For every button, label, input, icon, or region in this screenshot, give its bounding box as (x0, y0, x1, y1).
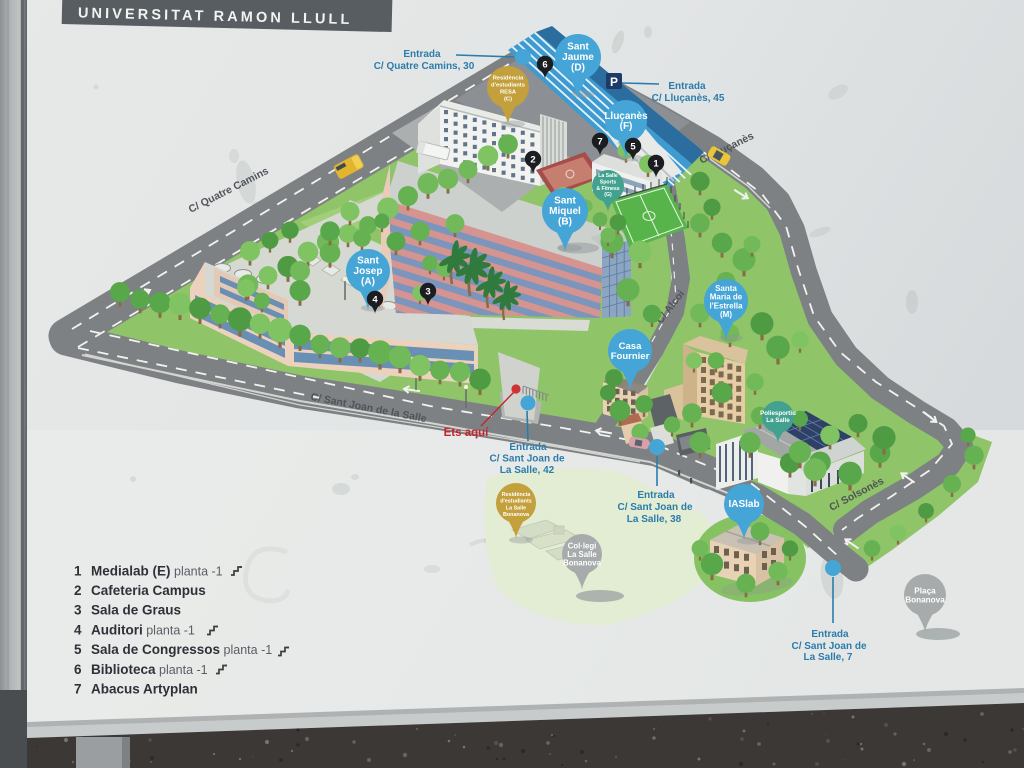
svg-text:2: 2 (530, 154, 535, 165)
svg-text:Miquel: Miquel (549, 206, 581, 217)
svg-text:d'estudiants: d'estudiants (500, 499, 532, 505)
svg-text:Entrada: Entrada (668, 81, 706, 92)
svg-text:6: 6 (542, 59, 547, 70)
svg-text:Sant: Sant (554, 196, 576, 207)
svg-text:Bonanova: Bonanova (905, 596, 945, 605)
svg-text:& Fitness: & Fitness (596, 186, 619, 192)
svg-text:C/ Sant Joan de: C/ Sant Joan de (791, 641, 866, 652)
svg-text:Jaume: Jaume (562, 52, 594, 63)
svg-text:Cafeteria Campus: Cafeteria Campus (91, 583, 206, 598)
svg-text:Sala de Graus: Sala de Graus (91, 603, 181, 618)
svg-text:Sant: Sant (567, 42, 589, 53)
svg-text:3: 3 (74, 603, 82, 618)
svg-text:Entrada: Entrada (637, 490, 675, 501)
svg-text:1: 1 (653, 158, 659, 169)
svg-text:4: 4 (74, 622, 82, 637)
svg-text:7: 7 (597, 136, 602, 147)
svg-text:Entrada: Entrada (811, 629, 849, 640)
svg-text:Josep: Josep (354, 266, 383, 277)
svg-text:(M): (M) (720, 310, 732, 319)
svg-text:La Salle: La Salle (506, 505, 526, 511)
svg-text:3: 3 (425, 286, 430, 297)
svg-text:d'estudiants: d'estudiants (491, 83, 525, 89)
svg-text:C/ Sant Joan de: C/ Sant Joan de (489, 454, 564, 465)
svg-text:Entrada: Entrada (509, 442, 547, 453)
svg-text:C/ Lluçanès, 45: C/ Lluçanès, 45 (652, 93, 725, 104)
svg-text:5: 5 (630, 141, 636, 152)
svg-text:(F): (F) (620, 121, 633, 132)
svg-text:(D): (D) (571, 63, 585, 74)
svg-text:2: 2 (74, 583, 82, 598)
svg-text:Fournier: Fournier (611, 351, 650, 362)
svg-text:Medialab (E) planta -1: Medialab (E) planta -1 (91, 563, 223, 578)
svg-text:RESA: RESA (500, 90, 517, 96)
svg-text:Sports: Sports (600, 179, 617, 185)
svg-text:(G): (G) (604, 192, 612, 198)
svg-text:Lluçanès: Lluçanès (604, 111, 648, 122)
svg-text:Poliesportiu: Poliesportiu (760, 410, 796, 417)
svg-text:C/ Quatre Camins, 30: C/ Quatre Camins, 30 (374, 61, 475, 72)
svg-text:Ets aquí: Ets aquí (444, 427, 490, 439)
svg-text:P: P (610, 75, 618, 89)
svg-text:Biblioteca planta -1: Biblioteca planta -1 (91, 662, 208, 677)
svg-text:5: 5 (74, 642, 82, 657)
svg-text:Residència: Residència (493, 76, 524, 82)
svg-text:Bonanova: Bonanova (563, 559, 601, 568)
svg-text:6: 6 (74, 662, 82, 677)
svg-text:Auditori planta -1: Auditori planta -1 (91, 622, 195, 637)
svg-text:La Salle, 7: La Salle, 7 (804, 652, 853, 663)
svg-text:La Salle: La Salle (766, 417, 790, 424)
svg-text:Sant: Sant (357, 256, 379, 267)
svg-text:Plaça: Plaça (914, 587, 936, 596)
svg-text:Bonanova: Bonanova (503, 512, 530, 518)
svg-text:C/ Sant Joan de: C/ Sant Joan de (617, 502, 692, 513)
svg-text:La Salle, 38: La Salle, 38 (627, 514, 682, 525)
svg-text:7: 7 (74, 682, 82, 697)
svg-text:1: 1 (74, 563, 82, 578)
svg-text:Entrada: Entrada (403, 49, 441, 60)
svg-text:(A): (A) (361, 277, 375, 288)
svg-text:Sala de Congressos planta -1: Sala de Congressos planta -1 (91, 642, 272, 657)
svg-text:Abacus Artyplan: Abacus Artyplan (91, 682, 198, 697)
svg-text:Residència: Residència (502, 492, 531, 498)
svg-text:La Salle: La Salle (598, 173, 618, 179)
svg-text:(C): (C) (504, 97, 512, 103)
svg-text:(B): (B) (558, 217, 572, 228)
svg-text:4: 4 (372, 294, 378, 305)
svg-text:La Salle, 42: La Salle, 42 (500, 465, 555, 476)
svg-text:IASlab: IASlab (728, 499, 759, 510)
